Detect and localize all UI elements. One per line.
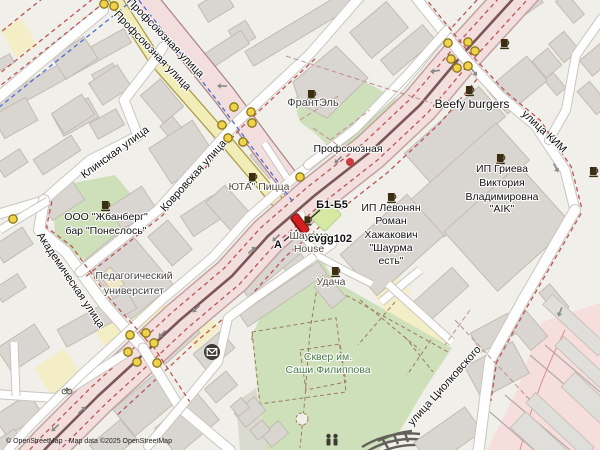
svg-text:бар "Понеслось": бар "Понеслось" (66, 225, 147, 237)
svg-text:Профсоюзная: Профсоюзная (313, 143, 382, 155)
svg-text:Роман: Роман (375, 215, 406, 227)
svg-text:есть": есть" (378, 255, 403, 267)
svg-text:"Шаурма: "Шаурма (369, 242, 412, 254)
svg-text:© OpenStreetMap - Map data ©20: © OpenStreetMap - Map data ©2025 OpenStr… (6, 437, 172, 445)
svg-text:Б1-Б5: Б1-Б5 (316, 199, 348, 211)
svg-text:Саши Филиппова: Саши Филиппова (285, 364, 370, 376)
svg-text:Хажакович: Хажакович (364, 229, 417, 241)
svg-text:cvgg102: cvgg102 (308, 233, 352, 245)
svg-text:ИП Гриева: ИП Гриева (476, 163, 528, 175)
svg-text:Сквер им.: Сквер им. (304, 351, 352, 363)
svg-text:Педагогический: Педагогический (95, 270, 172, 282)
svg-text:Beefy burgers: Beefy burgers (435, 97, 510, 111)
svg-text:"AIK": "AIK" (490, 203, 515, 215)
svg-text:А: А (274, 239, 282, 251)
svg-text:Виктория: Виктория (479, 177, 525, 189)
svg-text:ИП Левонян: ИП Левонян (361, 202, 421, 214)
svg-text:ЮТА" Пицца: ЮТА" Пицца (228, 181, 289, 193)
svg-text:ФрантЭль: ФрантЭль (287, 97, 339, 109)
svg-text:университет: университет (104, 285, 164, 297)
svg-text:Владимировна: Владимировна (466, 191, 539, 203)
svg-text:ООО "Жбанберг": ООО "Жбанберг" (64, 211, 148, 223)
svg-text:Удача: Удача (317, 276, 346, 288)
